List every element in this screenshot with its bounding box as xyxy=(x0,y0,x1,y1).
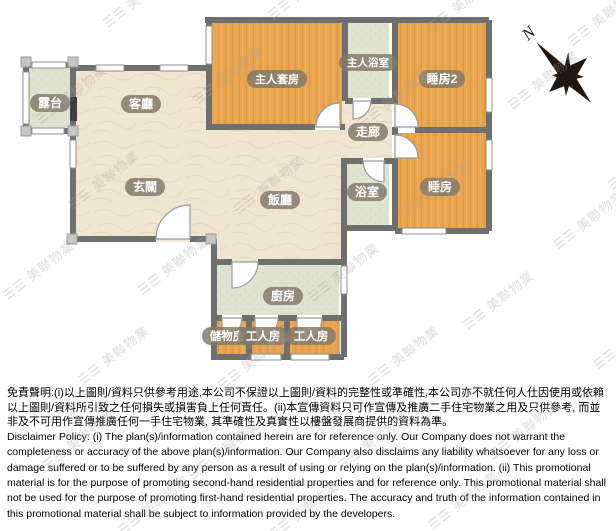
svg-text:客廳: 客廳 xyxy=(128,96,153,111)
window xyxy=(291,354,329,360)
svg-text:露台: 露台 xyxy=(38,95,62,110)
room-label-dining-room: 飯廳 xyxy=(260,191,300,209)
svg-text:工人房: 工人房 xyxy=(294,329,329,343)
floor-plan-svg: 露台 客廳 玄關 主人套房 主人浴室 睡房2 xyxy=(0,0,616,385)
disclaimer-english: Disclaimer Policy: (i) The plan(s)/infor… xyxy=(7,430,609,522)
terrace-door xyxy=(70,97,77,121)
disclaimer-chinese: 免責聲明:(i)以上圖則/資料只供參考用途,本公司不保證以上圖則/資料的完整性或… xyxy=(7,386,609,430)
window xyxy=(32,62,66,68)
room-label-maid-2: 工人房 xyxy=(286,327,336,345)
window xyxy=(96,65,124,71)
room-label-master-suite: 主人套房 xyxy=(247,70,307,88)
svg-text:走廊: 走廊 xyxy=(356,124,380,139)
window xyxy=(341,266,347,294)
svg-text:工人房: 工人房 xyxy=(246,329,281,343)
svg-text:浴室: 浴室 xyxy=(355,184,379,199)
room-label-master-bathroom: 主人浴室 xyxy=(339,54,397,71)
window xyxy=(160,65,188,71)
svg-text:主人浴室: 主人浴室 xyxy=(347,56,389,69)
room-label-maid-1: 工人房 xyxy=(238,327,288,345)
room-label-bedroom: 睡房 xyxy=(420,178,460,196)
svg-text:睡房: 睡房 xyxy=(428,179,452,194)
window xyxy=(486,140,492,170)
svg-text:主人套房: 主人套房 xyxy=(255,72,299,86)
room-label-corridor: 走廊 xyxy=(348,123,388,141)
room-label-kitchen: 廚房 xyxy=(263,287,303,305)
room-label-foyer: 玄關 xyxy=(125,178,165,196)
window xyxy=(251,354,281,360)
disclaimer: 免責聲明:(i)以上圖則/資料只供參考用途,本公司不保證以上圖則/資料的完整性或… xyxy=(0,384,616,522)
compass-north-label: N xyxy=(517,21,540,44)
room-label-terrace: 露台 xyxy=(30,94,70,112)
room-label-bathroom: 浴室 xyxy=(347,183,387,201)
svg-text:睡房2: 睡房2 xyxy=(427,71,458,86)
floor-plan-page: ☰☰ 美聯物業☰☰ 美聯物業☰☰ 美聯物業☰☰ 美聯物業☰☰ 美聯物業☰☰ 美聯… xyxy=(0,0,616,531)
svg-text:飯廳: 飯廳 xyxy=(267,192,292,207)
svg-text:廚房: 廚房 xyxy=(271,288,295,303)
compass: N xyxy=(504,7,613,120)
room-label-living-room: 客廳 xyxy=(121,95,161,113)
svg-text:玄關: 玄關 xyxy=(133,179,157,194)
window xyxy=(486,78,492,112)
room-label-bedroom-2: 睡房2 xyxy=(419,70,465,88)
window xyxy=(206,26,212,64)
window xyxy=(32,128,64,134)
window xyxy=(70,140,76,168)
window xyxy=(23,72,29,124)
window xyxy=(402,228,446,234)
